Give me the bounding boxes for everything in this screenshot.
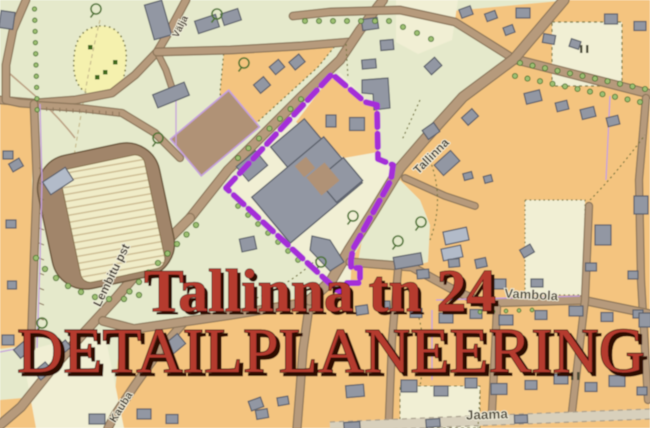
svg-text:Vambola: Vambola bbox=[504, 286, 559, 304]
svg-text:DETAILPLANEERING: DETAILPLANEERING bbox=[17, 315, 645, 386]
svg-text:Jaama: Jaama bbox=[466, 406, 509, 422]
